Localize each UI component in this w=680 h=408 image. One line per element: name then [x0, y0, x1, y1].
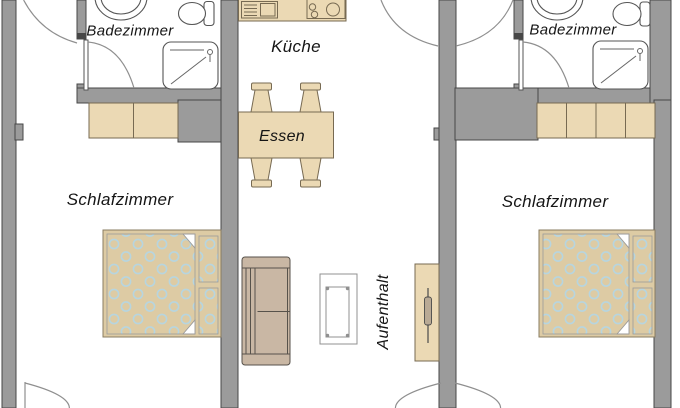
duvet	[543, 234, 629, 334]
bed-right	[539, 230, 655, 337]
chair-icon	[300, 90, 321, 112]
toilet-icon	[179, 3, 206, 25]
table-corner	[346, 287, 349, 290]
door-leaf-bath-left	[84, 40, 88, 90]
chair-icon	[251, 90, 272, 112]
room-label-bedroom-left: Schlafzimmer	[67, 190, 174, 210]
duvet	[107, 234, 195, 334]
toilet-icon	[613, 3, 641, 26]
chair-icon	[251, 158, 272, 180]
wall-right-outer-top	[650, 0, 671, 103]
wall-left-outer	[2, 0, 16, 408]
room-label-bedroom-right: Schlafzimmer	[502, 192, 609, 212]
pillow	[633, 288, 652, 334]
lamp-icon	[425, 297, 432, 325]
door-leaf-bath-right	[519, 40, 523, 90]
table-corner	[326, 287, 329, 290]
chair-back-icon	[301, 180, 321, 187]
chair-back-icon	[252, 83, 272, 90]
pillow	[633, 236, 652, 282]
floor-plan: Badezimmer Küche Badezimmer Schlafzimmer…	[0, 0, 680, 408]
wall-centre-left	[221, 0, 238, 408]
room-label-lounge: Aufenthalt	[375, 274, 393, 349]
wall-centre-right	[439, 0, 456, 408]
chair-icon	[300, 158, 321, 180]
coffee-table-top	[326, 287, 349, 337]
wall-right-shaft	[455, 88, 538, 140]
table-corner	[326, 334, 329, 337]
bed-left	[103, 230, 221, 337]
wall-cap	[514, 33, 523, 39]
chair-back-icon	[301, 83, 321, 90]
room-label-kitchen: Küche	[271, 37, 321, 57]
wall-right-outer	[654, 100, 671, 408]
room-label-dining: Essen	[259, 128, 305, 146]
wall-cap	[77, 33, 86, 39]
room-label-bathroom-left: Badezimmer	[86, 23, 173, 40]
chair-back-icon	[252, 180, 272, 187]
wall-left-notch	[15, 124, 23, 140]
kitchen-counter	[239, 0, 347, 21]
pillow	[199, 236, 218, 282]
pillow	[199, 288, 218, 334]
room-label-bathroom-right: Badezimmer	[529, 22, 616, 39]
table-corner	[346, 334, 349, 337]
